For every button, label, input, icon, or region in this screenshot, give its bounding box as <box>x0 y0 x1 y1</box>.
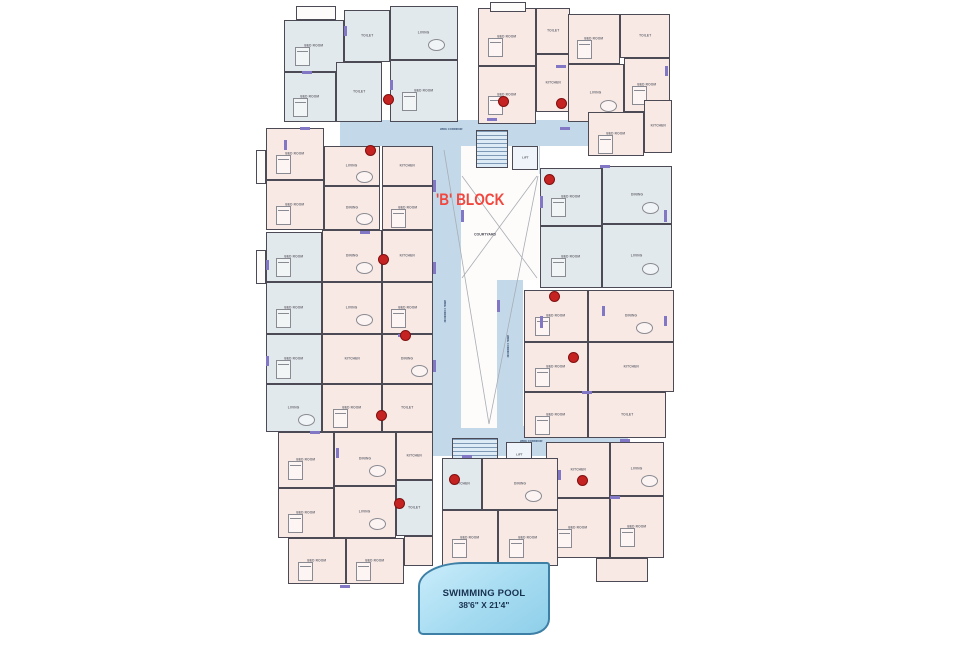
room: TOILET <box>536 8 570 54</box>
room: BED ROOM <box>524 392 588 438</box>
room: BED ROOM <box>266 232 322 282</box>
bed-icon <box>535 416 550 435</box>
entry-dot <box>365 145 376 156</box>
room: KITCHEN <box>322 334 382 384</box>
room-label: DINING <box>625 314 637 317</box>
bed-icon <box>488 38 503 57</box>
room: BED ROOM <box>284 72 336 122</box>
door-window-mark <box>540 196 543 208</box>
entry-dot <box>394 498 405 509</box>
room: LIVING <box>390 6 458 60</box>
lift-label: LIFT <box>522 157 528 160</box>
room-label: KITCHEN <box>650 125 665 128</box>
door-window-mark <box>487 118 497 121</box>
room-label: BED ROOM <box>415 89 434 92</box>
room: LIVING <box>322 282 382 334</box>
door-window-mark <box>540 316 543 328</box>
table-icon <box>356 262 373 274</box>
door-window-mark <box>664 316 667 326</box>
door-window-mark <box>556 65 566 68</box>
room: BED ROOM <box>278 488 334 538</box>
room <box>296 6 336 20</box>
bed-icon <box>333 409 348 428</box>
entry-dot <box>378 254 389 265</box>
room: KITCHEN <box>382 146 433 186</box>
door-window-mark <box>302 71 312 74</box>
room: BED ROOM <box>346 538 404 584</box>
room: TOILET <box>382 384 433 432</box>
door-window-mark <box>461 210 464 222</box>
courtyard-label: COURTYARD <box>470 233 500 237</box>
room: LIVING <box>610 442 664 496</box>
corridor <box>497 280 523 430</box>
room: BED ROOM <box>322 384 382 432</box>
entry-dot <box>577 475 588 486</box>
swimming-pool: SWIMMING POOL 38'6" X 21'4" <box>418 562 550 635</box>
room: DINING <box>322 230 382 282</box>
room-label: LIVING <box>359 510 371 513</box>
table-icon <box>369 465 386 477</box>
entry-dot <box>400 330 411 341</box>
room: BED ROOM <box>540 226 602 288</box>
room <box>404 536 433 566</box>
bed-icon <box>288 514 303 533</box>
room-label: DINING <box>401 357 413 360</box>
door-window-mark <box>620 439 630 442</box>
bed-icon <box>293 98 308 117</box>
room: DINING <box>602 166 672 224</box>
door-window-mark <box>266 260 269 270</box>
room-label: KITCHEN <box>407 454 422 457</box>
entry-dot <box>549 291 560 302</box>
room: BED ROOM <box>266 128 324 180</box>
bed-icon <box>620 528 635 547</box>
bed-icon <box>298 562 313 581</box>
room <box>256 250 266 284</box>
bed-icon <box>276 155 291 174</box>
room: DINING <box>382 334 433 384</box>
table-icon <box>369 518 386 530</box>
room: BED ROOM <box>568 14 620 64</box>
table-icon <box>428 39 445 51</box>
room-label: DINING <box>346 254 358 257</box>
door-window-mark <box>665 66 668 76</box>
corridor-label: WIDE CORRIDOR <box>506 335 509 358</box>
door-window-mark <box>310 431 320 434</box>
room-label: KITCHEN <box>623 365 638 368</box>
table-icon <box>600 100 617 112</box>
room-label: TOILET <box>401 406 413 409</box>
bed-icon <box>356 562 371 581</box>
room-label: LIVING <box>346 306 358 309</box>
room-label: TOILET <box>361 34 373 37</box>
room: BED ROOM <box>266 282 322 334</box>
entry-dot <box>544 174 555 185</box>
table-icon <box>641 475 658 487</box>
bed-icon <box>391 209 406 228</box>
room-label: KITCHEN <box>400 254 415 257</box>
bed-icon <box>288 461 303 480</box>
room: BED ROOM <box>284 20 344 72</box>
bed-icon <box>276 309 291 328</box>
room: DINING <box>482 458 558 510</box>
room-label: LIVING <box>631 254 643 257</box>
table-icon <box>411 365 428 377</box>
door-window-mark <box>462 455 472 458</box>
bed-icon <box>551 258 566 277</box>
room <box>256 150 266 184</box>
entry-dot <box>383 94 394 105</box>
room: KITCHEN <box>442 458 482 510</box>
door-window-mark <box>336 448 339 458</box>
door-window-mark <box>497 300 500 312</box>
room: KITCHEN <box>588 342 674 392</box>
bed-icon <box>295 47 310 66</box>
room: TOILET <box>336 62 382 122</box>
room: KITCHEN <box>396 432 433 480</box>
staircase <box>476 130 508 168</box>
door-window-mark <box>600 165 610 168</box>
room: LIVING <box>334 486 396 538</box>
floor-plan-drawing: LIFTLIFTBED ROOMBED ROOMTOILETTOILETLIVI… <box>0 0 965 650</box>
room: BED ROOM <box>266 180 324 230</box>
room: BED ROOM <box>382 282 433 334</box>
table-icon <box>298 414 315 426</box>
door-window-mark <box>300 127 310 130</box>
room-label: LIVING <box>590 91 602 94</box>
door-window-mark <box>664 210 667 222</box>
room: TOILET <box>620 14 670 58</box>
room: BED ROOM <box>382 186 433 230</box>
door-window-mark <box>266 356 269 366</box>
room-label: DINING <box>359 457 371 460</box>
room: BED ROOM <box>588 112 644 156</box>
room: BED ROOM <box>442 510 498 566</box>
corridor-label: WIDE CORRIDOR <box>440 128 463 131</box>
room <box>596 558 648 582</box>
entry-dot <box>376 410 387 421</box>
room: DINING <box>324 186 380 230</box>
room: BED ROOM <box>288 538 346 584</box>
room <box>490 2 526 12</box>
bed-icon <box>276 258 291 277</box>
corridor-label: WIDE CORRIDOR <box>443 300 446 323</box>
room: TOILET <box>588 392 666 438</box>
door-window-mark <box>560 127 570 130</box>
floor-plan-page: LIFTLIFTBED ROOMBED ROOMTOILETTOILETLIVI… <box>0 0 965 650</box>
room-label: KITCHEN <box>344 357 359 360</box>
bed-icon <box>577 40 592 59</box>
lift-label: LIFT <box>516 454 522 457</box>
bed-icon <box>402 92 417 111</box>
room-label: LIVING <box>631 467 643 470</box>
room: BED ROOM <box>390 60 458 122</box>
room: BED ROOM <box>524 342 588 392</box>
room: DINING <box>334 432 396 486</box>
bed-icon <box>551 198 566 217</box>
block-title: 'B' BLOCK <box>436 190 516 210</box>
bed-icon <box>391 309 406 328</box>
door-window-mark <box>582 391 592 394</box>
table-icon <box>525 490 542 502</box>
entry-dot <box>568 352 579 363</box>
table-icon <box>356 171 373 183</box>
corridor-label: WIDE CORRIDOR <box>520 440 543 443</box>
room: BED ROOM <box>498 510 558 566</box>
swimming-pool-label: SWIMMING POOL <box>443 588 526 599</box>
room-label: DINING <box>631 193 643 196</box>
door-window-mark <box>433 262 436 274</box>
courtyard <box>461 280 497 428</box>
room-label: LIVING <box>288 406 300 409</box>
room: LIVING <box>602 224 672 288</box>
room-label: LIVING <box>418 31 430 34</box>
door-window-mark <box>390 80 393 90</box>
room-label: KITCHEN <box>400 164 415 167</box>
room-label: TOILET <box>639 34 651 37</box>
table-icon <box>642 263 659 275</box>
door-window-mark <box>340 585 350 588</box>
table-icon <box>356 314 373 326</box>
bed-icon <box>598 135 613 154</box>
room: DINING <box>588 290 674 342</box>
bed-icon <box>557 529 572 548</box>
door-window-mark <box>610 496 620 499</box>
room: TOILET <box>344 10 390 62</box>
room: BED ROOM <box>266 334 322 384</box>
table-icon <box>356 213 373 225</box>
door-window-mark <box>433 360 436 372</box>
room-label: TOILET <box>621 413 633 416</box>
room-label: DINING <box>514 482 526 485</box>
entry-dot <box>449 474 460 485</box>
door-window-mark <box>602 306 605 316</box>
room-label: TOILET <box>353 90 365 93</box>
room-label: DINING <box>346 206 358 209</box>
room-label: KITCHEN <box>545 81 560 84</box>
entry-dot <box>556 98 567 109</box>
room: BED ROOM <box>610 496 664 558</box>
lift: LIFT <box>512 146 538 170</box>
room-label: TOILET <box>408 506 420 509</box>
bed-icon <box>509 539 524 558</box>
room: LIVING <box>266 384 322 432</box>
room: BED ROOM <box>278 432 334 488</box>
swimming-pool-dimensions: 38'6" X 21'4" <box>459 600 510 610</box>
bed-icon <box>276 360 291 379</box>
room: KITCHEN <box>644 100 672 153</box>
door-window-mark <box>558 470 561 480</box>
room-label: TOILET <box>547 29 559 32</box>
room-label: KITCHEN <box>570 468 585 471</box>
bed-icon <box>535 368 550 387</box>
bed-icon <box>276 206 291 225</box>
room: BED ROOM <box>478 66 536 124</box>
door-window-mark <box>360 231 370 234</box>
room-label: LIVING <box>346 164 358 167</box>
entry-dot <box>498 96 509 107</box>
door-window-mark <box>284 140 287 150</box>
table-icon <box>642 202 659 214</box>
room: KITCHEN <box>382 230 433 282</box>
room: BED ROOM <box>478 8 536 66</box>
bed-icon <box>452 539 467 558</box>
table-icon <box>636 322 653 334</box>
door-window-mark <box>344 26 347 36</box>
